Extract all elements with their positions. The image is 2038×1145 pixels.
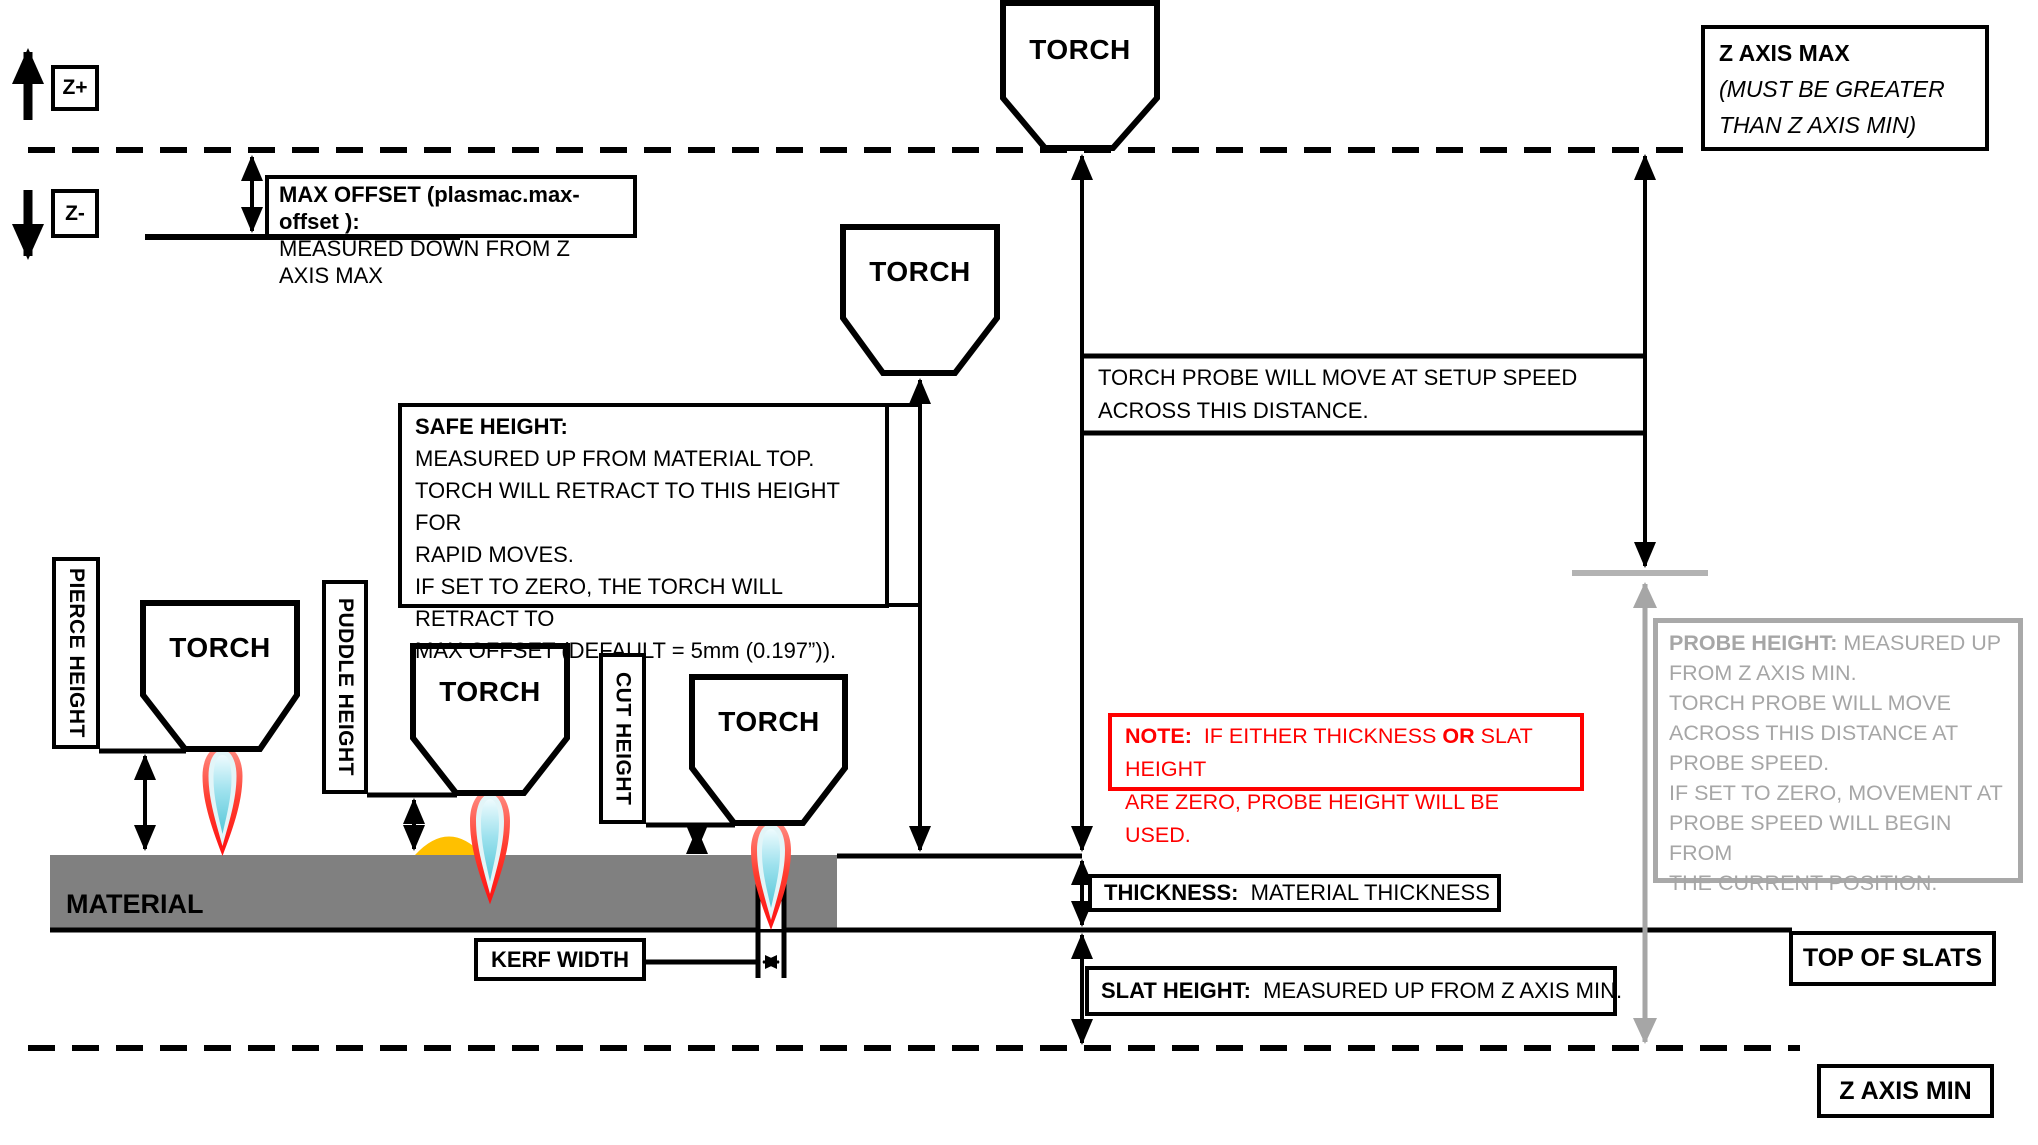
probe-height-line7: PROBE SPEED WILL BEGIN FROM — [1669, 808, 2007, 868]
z-minus-label-box: Z- — [51, 189, 99, 238]
probe-height-line2: FROM Z AXIS MIN. — [1669, 658, 2007, 688]
diagram-linework — [0, 0, 2038, 1145]
probe-height-line3: TORCH PROBE WILL MOVE — [1669, 688, 2007, 718]
pierce-flame-icon — [203, 746, 243, 856]
cut-height-label-box: CUT HEIGHT — [599, 653, 646, 824]
torch-probe-start-shape — [1003, 3, 1157, 148]
note-seg1: IF EITHER THICKNESS — [1192, 724, 1442, 748]
cut-height-label: CUT HEIGHT — [611, 672, 635, 805]
safe-height-box: SAFE HEIGHT: MEASURED UP FROM MATERIAL T… — [398, 403, 889, 608]
z-axis-max-note-line1: (MUST BE GREATER — [1719, 71, 1971, 107]
thickness-box: THICKNESS: MATERIAL THICKNESS — [1088, 874, 1501, 912]
probe-height-box: PROBE HEIGHT: MEASURED UP FROM Z AXIS MI… — [1653, 618, 2023, 883]
torch-puddle-label: TORCH — [413, 676, 567, 708]
torch-pierce-label: TORCH — [143, 632, 297, 664]
thickness-description: MATERIAL THICKNESS — [1238, 880, 1489, 905]
slat-height-title: SLAT HEIGHT: — [1101, 978, 1251, 1003]
z-plus-label-box: Z+ — [51, 65, 99, 111]
note-box: NOTE: IF EITHER THICKNESS OR SLAT HEIGHT… — [1108, 713, 1584, 791]
pierce-height-label: PIERCE HEIGHT — [64, 568, 88, 738]
safe-height-line4: RAPID MOVES. — [415, 539, 872, 571]
max-offset-box: MAX OFFSET (plasmac.max-offset ): MEASUR… — [265, 175, 637, 238]
safe-height-line5: IF SET TO ZERO, THE TORCH WILL RETRACT T… — [415, 571, 872, 635]
safe-height-line2: MEASURED UP FROM MATERIAL TOP. — [415, 443, 872, 475]
torch-cut-shape — [692, 677, 845, 823]
safe-height-title: SAFE HEIGHT: — [415, 414, 568, 439]
puddle-height-label-box: PUDDLE HEIGHT — [322, 580, 368, 794]
kerf-width-box: KERF WIDTH — [474, 938, 646, 981]
torch-pierce-shape — [143, 603, 297, 749]
probe-height-title: PROBE HEIGHT: — [1669, 631, 1837, 655]
pierce-height-label-box: PIERCE HEIGHT — [52, 557, 100, 749]
torch-cut-label: TORCH — [692, 706, 846, 738]
slat-height-description: MEASURED UP FROM Z AXIS MIN. — [1251, 978, 1622, 1003]
probe-height-line1: MEASURED UP — [1837, 631, 2001, 655]
z-axis-max-title: Z AXIS MAX — [1719, 35, 1971, 71]
torch-puddle-shape — [413, 646, 567, 793]
z-axis-min-box: Z AXIS MIN — [1817, 1064, 1994, 1118]
safe-height-line3: TORCH WILL RETRACT TO THIS HEIGHT FOR — [415, 475, 872, 539]
max-offset-title: MAX OFFSET (plasmac.max-offset ): — [279, 181, 623, 235]
note-line2: ARE ZERO, PROBE HEIGHT WILL BE USED. — [1125, 786, 1567, 852]
z-axis-min-label: Z AXIS MIN — [1839, 1077, 1971, 1106]
torch-probe-band-text: TORCH PROBE WILL MOVE AT SETUP SPEED ACR… — [1098, 361, 1638, 427]
probe-height-line8: THE CURRENT POSITION. — [1669, 868, 2007, 898]
probe-height-line5: PROBE SPEED. — [1669, 748, 2007, 778]
material-label: MATERIAL — [66, 889, 203, 920]
torch-probe-start-label: TORCH — [1003, 34, 1157, 66]
top-of-slats-label: TOP OF SLATS — [1803, 944, 1982, 973]
top-of-slats-box: TOP OF SLATS — [1789, 931, 1996, 986]
z-axis-max-box: Z AXIS MAX (MUST BE GREATER THAN Z AXIS … — [1701, 25, 1989, 151]
thickness-title: THICKNESS: — [1104, 880, 1238, 905]
probe-height-line4: ACROSS THIS DISTANCE AT — [1669, 718, 2007, 748]
kerf-width-label: KERF WIDTH — [491, 947, 629, 973]
puddle-height-label: PUDDLE HEIGHT — [333, 598, 357, 776]
note-bold2: OR — [1442, 724, 1474, 748]
probe-height-line6: IF SET TO ZERO, MOVEMENT AT — [1669, 778, 2007, 808]
z-plus-label: Z+ — [62, 76, 87, 100]
torch-probe-line2: ACROSS THIS DISTANCE. — [1098, 394, 1638, 427]
max-offset-description: MEASURED DOWN FROM Z AXIS MAX — [279, 235, 623, 289]
z-axis-max-note-line2: THAN Z AXIS MIN) — [1719, 107, 1971, 143]
plasmac-height-diagram: Z+ Z- MAX OFFSET (plasmac.max-offset ): … — [0, 0, 2038, 1145]
torch-probe-line1: TORCH PROBE WILL MOVE AT SETUP SPEED — [1098, 361, 1638, 394]
note-line1: NOTE: IF EITHER THICKNESS OR SLAT HEIGHT — [1125, 720, 1567, 786]
slat-height-box: SLAT HEIGHT: MEASURED UP FROM Z AXIS MIN… — [1085, 966, 1617, 1016]
torch-safe-height-label: TORCH — [843, 256, 997, 288]
note-bold1: NOTE: — [1125, 724, 1192, 748]
z-minus-label: Z- — [65, 202, 85, 226]
torch-safe-height-shape — [843, 227, 997, 373]
